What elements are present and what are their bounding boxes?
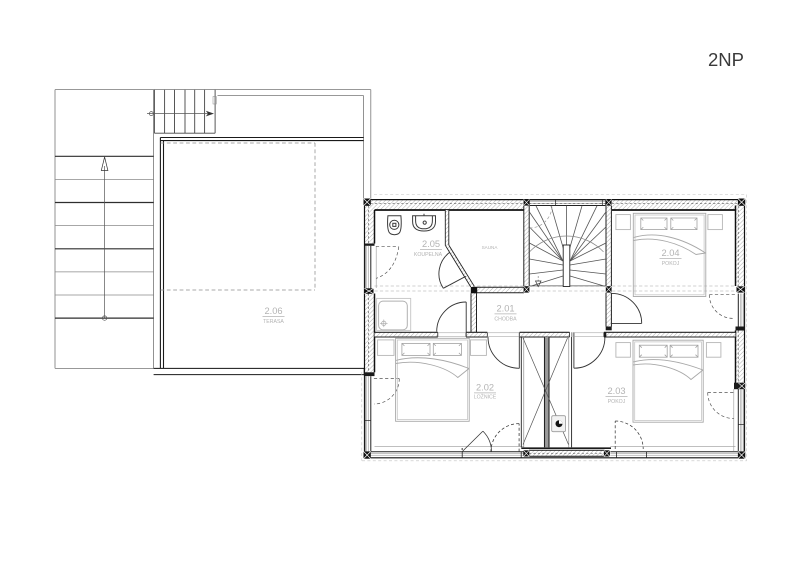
- svg-text:POKOJ: POKOJ: [608, 399, 626, 405]
- svg-text:CHODBA: CHODBA: [494, 316, 517, 322]
- svg-text:KOUPELNA: KOUPELNA: [414, 252, 443, 258]
- svg-text:2.02: 2.02: [476, 383, 494, 393]
- svg-text:2.05: 2.05: [422, 239, 440, 249]
- svg-text:2.06: 2.06: [264, 306, 282, 316]
- svg-text:SAUNA: SAUNA: [482, 245, 499, 250]
- svg-text:2NP: 2NP: [708, 49, 744, 70]
- svg-text:2.03: 2.03: [607, 386, 625, 396]
- svg-text:LOŽNICE: LOŽNICE: [474, 393, 497, 401]
- svg-text:POKOJ: POKOJ: [662, 261, 680, 267]
- svg-text:2.01: 2.01: [496, 304, 514, 314]
- svg-text:2.04: 2.04: [661, 248, 679, 258]
- svg-text:TERASA: TERASA: [263, 319, 284, 325]
